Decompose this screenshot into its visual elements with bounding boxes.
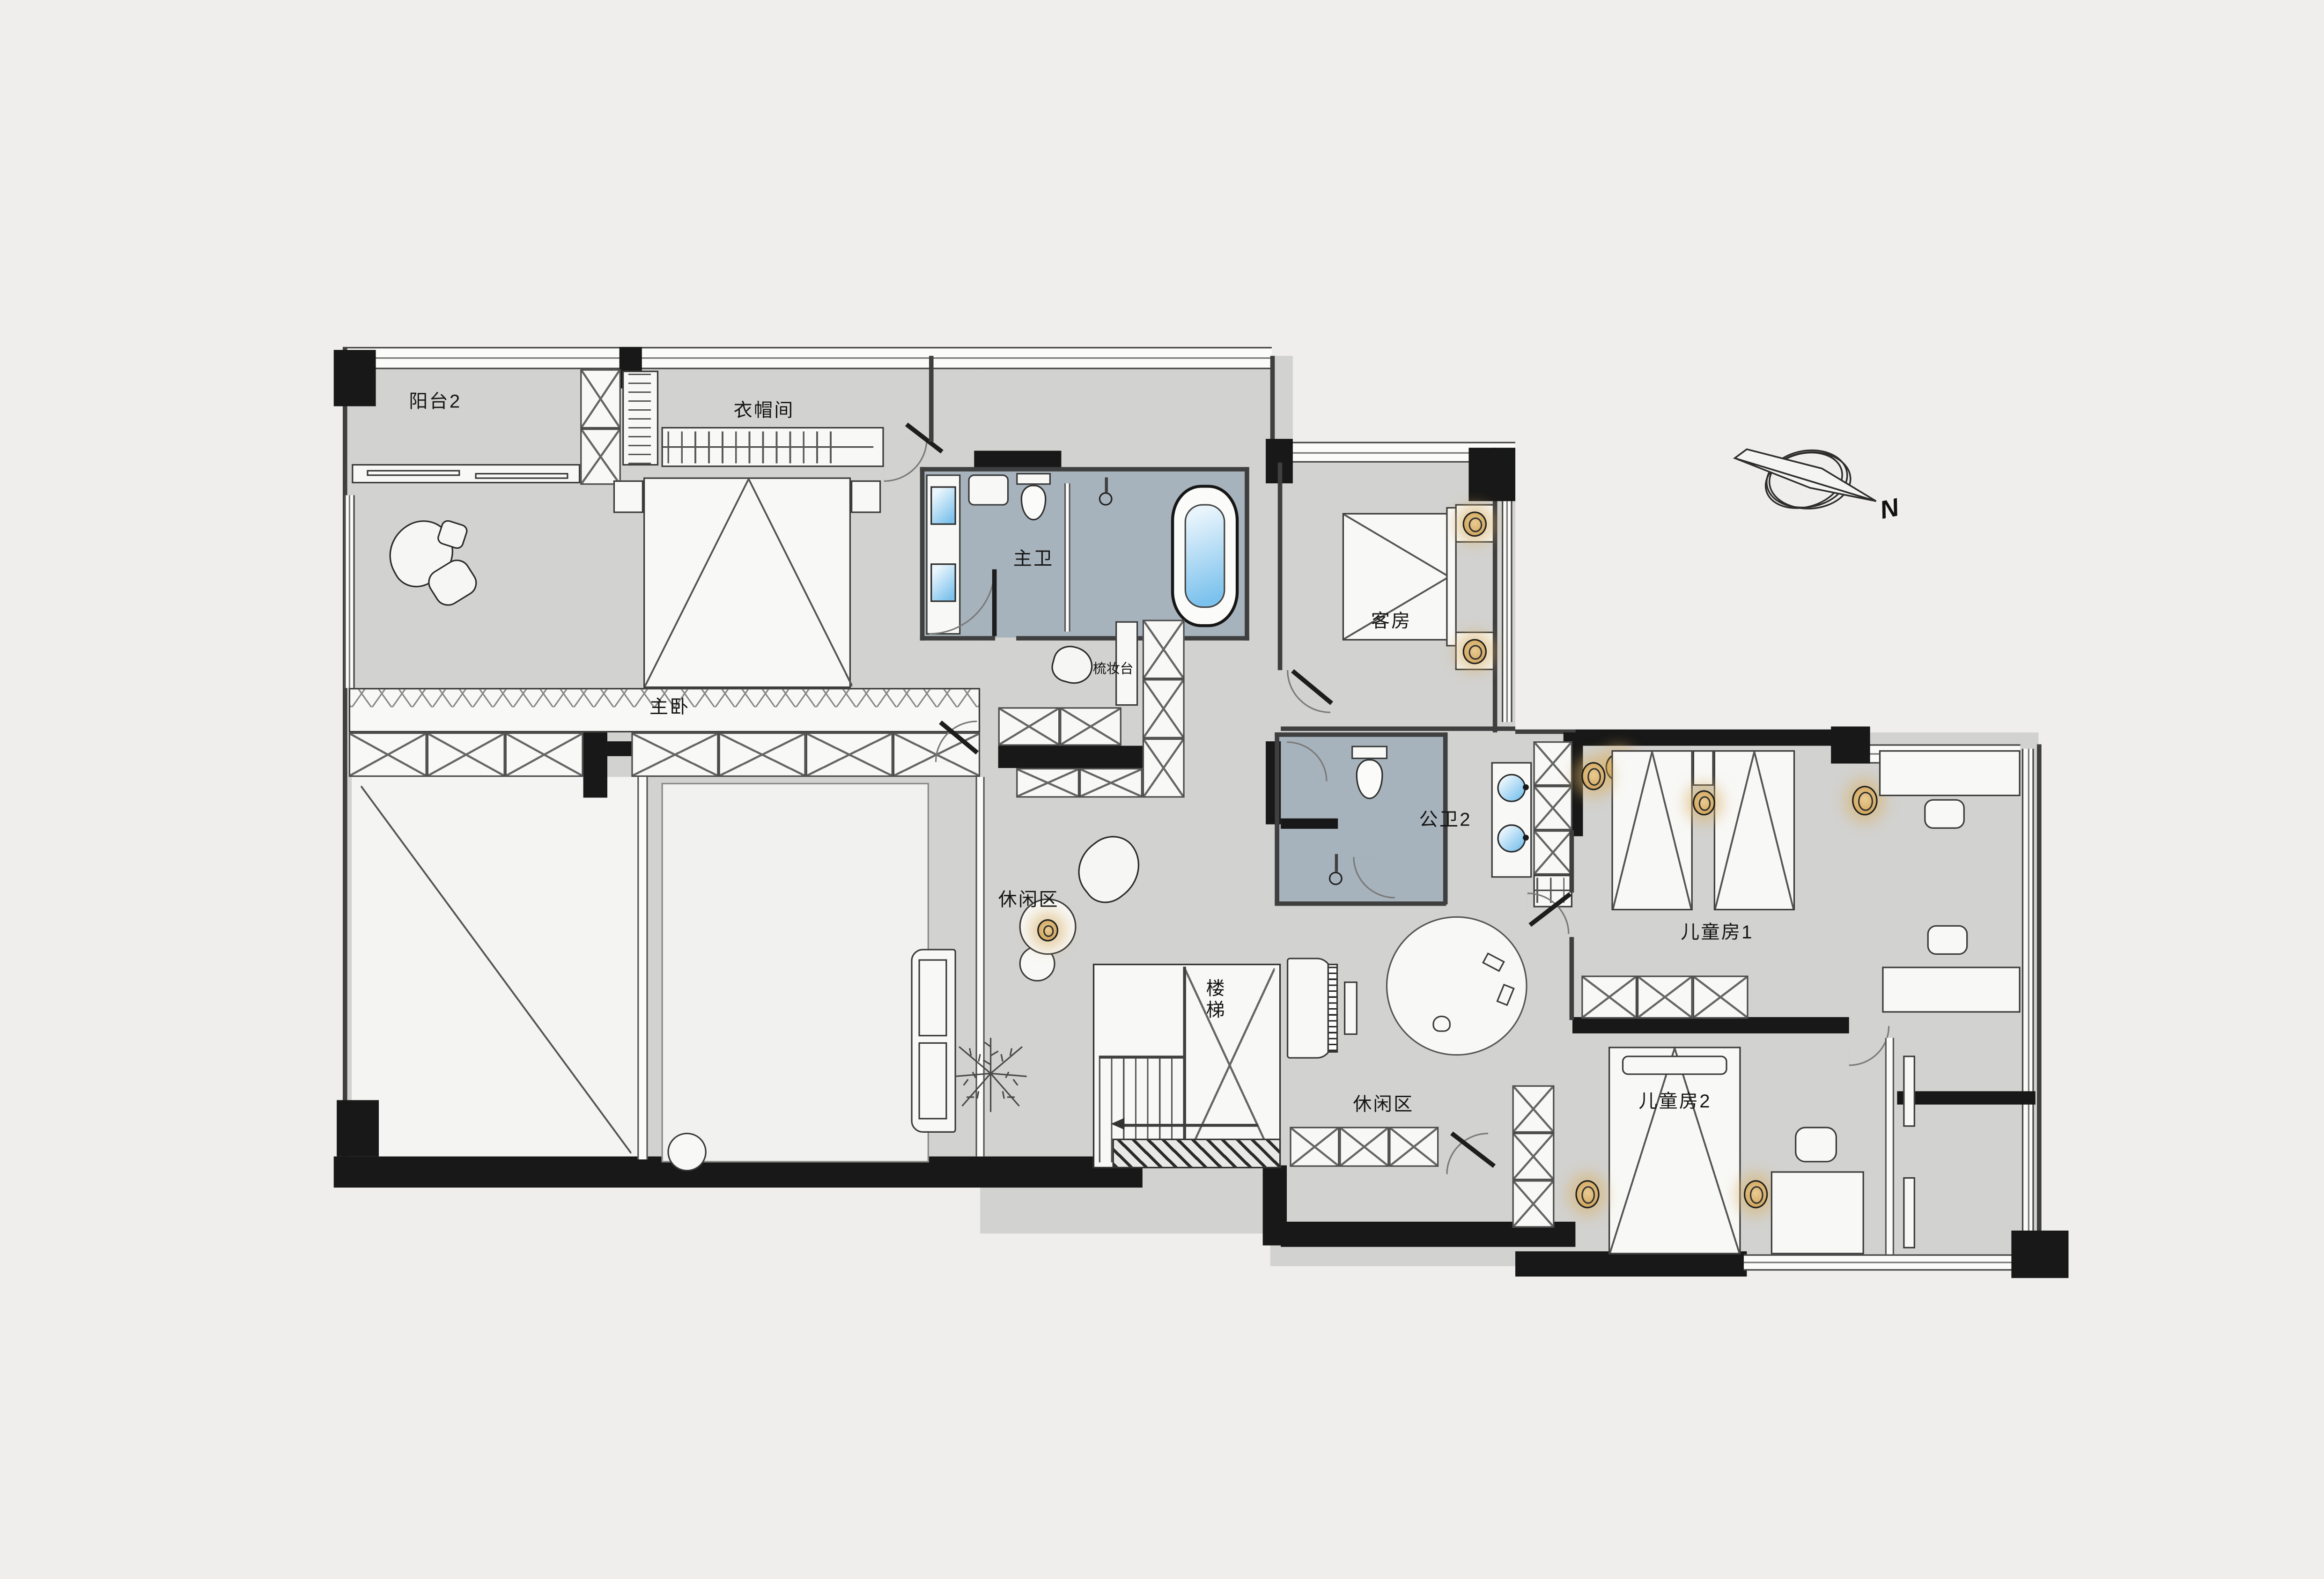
east-window-band — [2022, 749, 2034, 1259]
hall-closet-x-3 — [1016, 768, 1079, 797]
mbath-wall-right — [1245, 467, 1249, 640]
kids2-bed — [1608, 1047, 1741, 1254]
wardrobe-x-4 — [631, 732, 718, 777]
room-label-leisure-east: 休闲区 — [1353, 1088, 1414, 1116]
stair-hatch-band — [1113, 1139, 1281, 1168]
mbath-handshower-icon — [1099, 492, 1113, 505]
stair-rail — [1183, 967, 1186, 1165]
cloak-east-wall — [929, 356, 934, 442]
bed-duvet-line — [1613, 752, 1652, 909]
balcony-cabinet-x2 — [580, 428, 621, 485]
balcony-slider-right — [475, 473, 568, 479]
void-diagonal-line — [361, 786, 631, 1153]
family-sofa — [911, 949, 956, 1133]
column-bottom-right — [2011, 1231, 2068, 1278]
piano-keys — [1328, 964, 1338, 1053]
vanity-faucet-1 — [1523, 784, 1529, 790]
room-label-balcony2: 阳台2 — [409, 385, 461, 413]
pbath-inner-wall — [1281, 819, 1338, 829]
bed-duvet-line — [749, 479, 853, 686]
wall-kids-divider — [1572, 1017, 1849, 1033]
void-glass-partition — [637, 777, 648, 1159]
kids2-desk — [1771, 1171, 1864, 1254]
compass-north-letter: N — [1877, 493, 1902, 524]
dressing-wardrobe-x-b — [1143, 679, 1185, 738]
room-label-master-bedroom: 主卧 — [649, 691, 690, 719]
mbath-wall-bottom-left — [920, 636, 996, 640]
mbath-wall-left — [920, 467, 925, 640]
hall-tall-cabinet-x-c — [1512, 1180, 1555, 1227]
kids1-lamp-2 — [1693, 790, 1715, 816]
column-kids1-north — [1831, 726, 1870, 763]
hall-tall-cabinet-x-b — [1512, 1133, 1555, 1180]
vanity-cabinet-x-a — [1534, 741, 1572, 786]
kids2-south-window — [1744, 1254, 2014, 1271]
hall-closet-x-1 — [998, 707, 1060, 745]
pbath-wall-left — [1275, 732, 1278, 904]
toy-car-2 — [1496, 984, 1514, 1006]
toy-teddy — [1432, 1016, 1451, 1032]
mbath-shower-tray — [968, 474, 1009, 505]
kids2-balcony-shelf-2 — [1903, 1177, 1915, 1248]
kids1-west-wall-lower — [1570, 937, 1574, 1020]
hall-tall-cabinet-x-a — [1512, 1085, 1555, 1133]
bed-duvet-line — [1754, 752, 1793, 909]
room-label-leisure-west: 休闲区 — [998, 884, 1059, 912]
master-bed — [643, 478, 851, 688]
column-top-left — [334, 350, 376, 406]
balcony-slider-left — [367, 470, 460, 476]
vanity-cabinet-x-b — [1534, 786, 1572, 830]
kids2-pillow — [1622, 1055, 1727, 1075]
kids1-lamp-3 — [1852, 786, 1878, 815]
bed-duvet-line — [1652, 752, 1691, 909]
wardrobe-x-3 — [505, 732, 583, 777]
hall-closet-x-4 — [1079, 768, 1143, 797]
kids1-wardrobe-x-2 — [1637, 975, 1693, 1018]
kids1-bench-chair — [1927, 925, 1968, 955]
kids-play-rug — [1386, 916, 1527, 1056]
mbath-wall-top — [920, 467, 1248, 471]
room-label-master-bath: 主卫 — [1013, 543, 1054, 571]
wardrobe-x-5 — [719, 732, 806, 777]
bed-duvet-line — [1715, 752, 1754, 909]
kids1-lamp-1 — [1581, 762, 1605, 790]
floor-plan: 休闲区 主卫 梳妆台 楼梯 — [0, 0, 2324, 1579]
step-wall-guest — [1270, 356, 1274, 448]
master-nightstand-right — [851, 480, 881, 513]
wall-kids-divider-east — [1897, 1091, 2035, 1104]
mbath-glass-divider — [1064, 483, 1070, 632]
shared-vanity-sink-1 — [1497, 774, 1526, 802]
hall-closet-x-2 — [1060, 707, 1121, 745]
guest-wall-bottom — [1281, 726, 1515, 730]
kids1-bed-2 — [1714, 750, 1795, 910]
north-compass: N — [1729, 433, 1924, 537]
leisure-west-table-lamp — [1037, 919, 1058, 941]
kids2-window-partition — [1885, 1038, 1894, 1254]
guest-lamp-bottom — [1463, 639, 1487, 664]
cloak-hanging-wardrobe — [662, 427, 884, 467]
east-wall-line — [2037, 744, 2041, 1266]
shared-vanity-sink-2 — [1497, 824, 1526, 852]
column-bottom-left — [337, 1100, 379, 1156]
toy-car-1 — [1482, 952, 1505, 972]
pbath-wall-top — [1275, 732, 1446, 736]
room-label-dressing-table: 梳妆台 — [1093, 658, 1134, 678]
wardrobe-x-1 — [349, 732, 427, 777]
cloak-shoe-cabinet — [622, 371, 658, 466]
sofa-cushion — [918, 959, 947, 1037]
guest-east-window — [1502, 500, 1512, 722]
west-wall-line — [343, 347, 347, 1186]
family-room-rug — [662, 783, 929, 1163]
mbath-door-leaf — [992, 569, 997, 636]
mbath-toilet-tank — [1016, 473, 1051, 485]
room-label-kids-room2: 儿童房2 — [1638, 1085, 1712, 1114]
bed-duvet-line — [645, 479, 749, 686]
room-label-kids-room1: 儿童房1 — [1681, 916, 1754, 944]
mbath-handshower-stem — [1105, 478, 1107, 493]
west-window-master — [344, 495, 354, 688]
kids2-lamp-1 — [1575, 1180, 1599, 1208]
guest-lamp-top — [1463, 511, 1487, 537]
guest-wall-left — [1278, 463, 1283, 670]
pbath-toilet-tank — [1351, 746, 1387, 759]
kids2-balcony-shelf-1 — [1903, 1055, 1915, 1127]
hall-closet-wall — [998, 746, 1143, 768]
stair-upper-flight — [1185, 968, 1275, 1163]
dressing-wardrobe-x-a — [1143, 620, 1185, 679]
pbath-wall-bottom — [1275, 901, 1446, 905]
family-pouf — [667, 1133, 706, 1171]
piano-body — [1287, 958, 1332, 1058]
kids1-wardrobe-x-1 — [1581, 975, 1637, 1018]
kids1-window-bench — [1882, 967, 2020, 1012]
balcony-cabinet-x — [580, 369, 621, 428]
bed-duvet-line — [1344, 515, 1449, 577]
stair-arrow-head — [1111, 1118, 1124, 1129]
kids1-desk — [1879, 750, 2021, 796]
bed-duvet-line — [1675, 1048, 1739, 1253]
piano-bench — [1344, 981, 1358, 1035]
kids2-lamp-2 — [1744, 1180, 1768, 1208]
vanity-faucet-2 — [1523, 835, 1529, 841]
kids1-bed-1 — [1611, 750, 1692, 910]
hall-wardrobe-x-1 — [1290, 1127, 1339, 1166]
wall-kids1-north — [1575, 730, 1834, 746]
room-label-cloakroom: 衣帽间 — [734, 394, 795, 422]
north-window-band — [343, 347, 1272, 369]
bed-duvet-line — [1610, 1048, 1675, 1253]
column-guest-northeast — [1468, 448, 1515, 501]
pbath-shower-stem — [1335, 854, 1337, 872]
mbath-sink-1 — [930, 487, 956, 525]
kids2-desk-chair — [1795, 1127, 1837, 1162]
stair-arrow-shaft — [1123, 1124, 1258, 1127]
room-label-guest-room: 客房 — [1371, 605, 1412, 633]
kids1-west-wall-upper — [1570, 830, 1574, 893]
stair-landing-line — [1099, 1055, 1185, 1058]
kids1-wardrobe-x-3 — [1693, 975, 1749, 1018]
kids1-nightstand — [1693, 750, 1714, 786]
wardrobe-x-6 — [806, 732, 893, 777]
mbath-bathtub — [1171, 485, 1239, 627]
wardrobe-x-2 — [427, 732, 505, 777]
wall-kids2-south — [1515, 1251, 1747, 1276]
master-nightstand-left — [613, 480, 643, 513]
kids1-desk-chair — [1924, 799, 1965, 829]
vanity-cabinet-x-c — [1534, 830, 1572, 875]
hall-wardrobe-x-3 — [1389, 1127, 1439, 1166]
room-label-stairs: 楼梯 — [1200, 979, 1228, 1022]
plant-icon — [950, 1032, 1031, 1115]
sofa-cushion — [918, 1042, 947, 1120]
room-label-public-bath2: 公卫2 — [1419, 804, 1472, 832]
dressing-wardrobe-x-c — [1143, 738, 1185, 798]
pbath-shower-icon — [1329, 872, 1343, 885]
hall-wardrobe-x-2 — [1339, 1127, 1389, 1166]
